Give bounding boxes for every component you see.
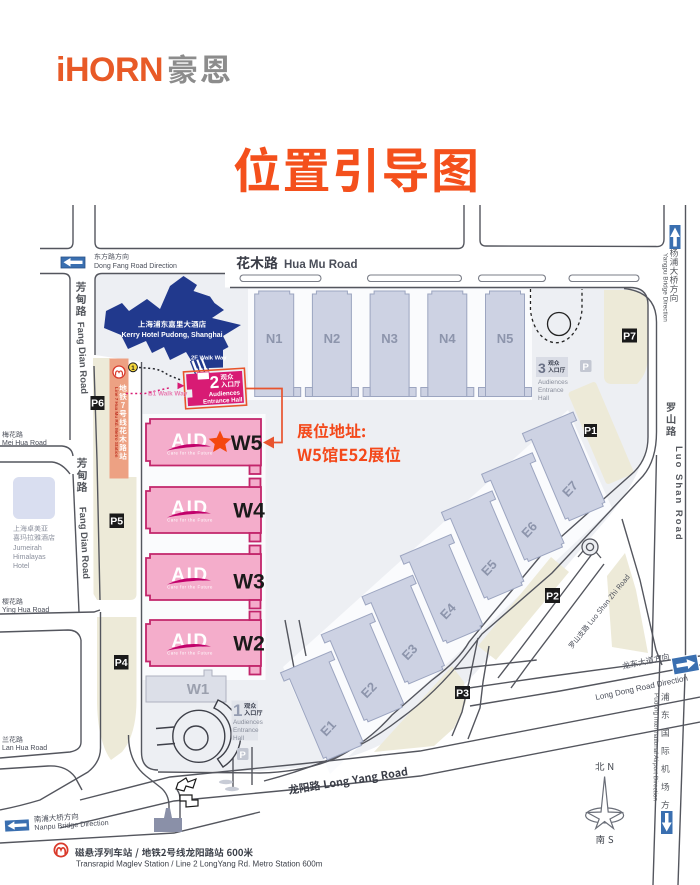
svg-text:P4: P4: [115, 657, 128, 669]
svg-text:N2: N2: [324, 331, 341, 346]
svg-text:W1: W1: [187, 681, 210, 698]
svg-text:N1: N1: [266, 331, 283, 346]
svg-text:W2: W2: [233, 633, 265, 656]
svg-text:Dong Fang Road Direction: Dong Fang Road Direction: [94, 263, 177, 270]
svg-text:AID: AID: [171, 431, 208, 452]
svg-text:Fang Dian Road: Fang Dian Road: [77, 507, 92, 580]
svg-text:Entrance: Entrance: [233, 727, 259, 734]
svg-text:Lan Hua Road: Lan Hua Road: [2, 745, 47, 752]
svg-text:2F Walk Way: 2F Walk Way: [191, 356, 227, 362]
svg-text:Mei Hua Road: Mei Hua Road: [2, 440, 47, 447]
svg-text:2: 2: [209, 373, 220, 393]
svg-text:W4: W4: [233, 500, 265, 523]
svg-text:Hotel: Hotel: [13, 563, 30, 570]
svg-text:Audiences: Audiences: [233, 719, 263, 726]
svg-text:Hall: Hall: [538, 395, 549, 402]
svg-text:P7: P7: [623, 330, 636, 342]
svg-text:W3: W3: [233, 571, 265, 594]
svg-text:P: P: [583, 362, 590, 373]
svg-text:Transrapid Maglev Station / Li: Transrapid Maglev Station / Line 2 LongY…: [76, 860, 323, 869]
svg-text:Long Dong Road Direction: Long Dong Road Direction: [595, 674, 689, 702]
svg-text:Audiences: Audiences: [538, 379, 568, 386]
svg-text:Jumeirah: Jumeirah: [13, 545, 42, 552]
svg-text:N3: N3: [381, 331, 398, 346]
svg-text:Care for the Future: Care for the Future: [167, 451, 213, 456]
svg-text:P2: P2: [546, 590, 559, 602]
svg-text:Hua Mu Road: Hua Mu Road: [284, 259, 357, 271]
svg-text:P1: P1: [584, 425, 597, 437]
svg-text:Pudong Inter national Airport: Pudong Inter national Airport Direction: [652, 693, 660, 801]
svg-text:Kerry Hotel Pudong, Shanghai: Kerry Hotel Pudong, Shanghai: [121, 332, 222, 339]
svg-text:iHORN: iHORN: [56, 51, 163, 89]
svg-text:W5: W5: [231, 432, 263, 455]
svg-text:P: P: [240, 750, 247, 761]
svg-text:P6: P6: [91, 398, 104, 410]
svg-text:P5: P5: [110, 515, 123, 527]
svg-text:P3: P3: [456, 687, 469, 699]
svg-text:N5: N5: [497, 331, 514, 346]
svg-text:B1 Walk Way: B1 Walk Way: [148, 391, 188, 398]
svg-text:Entrance: Entrance: [538, 387, 564, 394]
svg-text:N4: N4: [439, 331, 456, 346]
svg-text:3: 3: [538, 360, 546, 376]
svg-text:Hall: Hall: [233, 735, 244, 742]
svg-text:Line 7 Hua Mu Rd. Metro Statio: Line 7 Hua Mu Rd. Metro Station: [114, 387, 119, 458]
svg-text:Yangpu Bridge Direction: Yangpu Bridge Direction: [662, 253, 669, 322]
svg-text:1: 1: [233, 701, 242, 720]
svg-text:Ying Hua Road: Ying Hua Road: [2, 607, 49, 614]
svg-text:1: 1: [131, 365, 135, 372]
svg-text:Himalayas: Himalayas: [13, 554, 46, 561]
svg-text:Luo Shan Road: Luo Shan Road: [673, 446, 684, 542]
svg-text:Fang Dian Road: Fang Dian Road: [75, 322, 90, 395]
